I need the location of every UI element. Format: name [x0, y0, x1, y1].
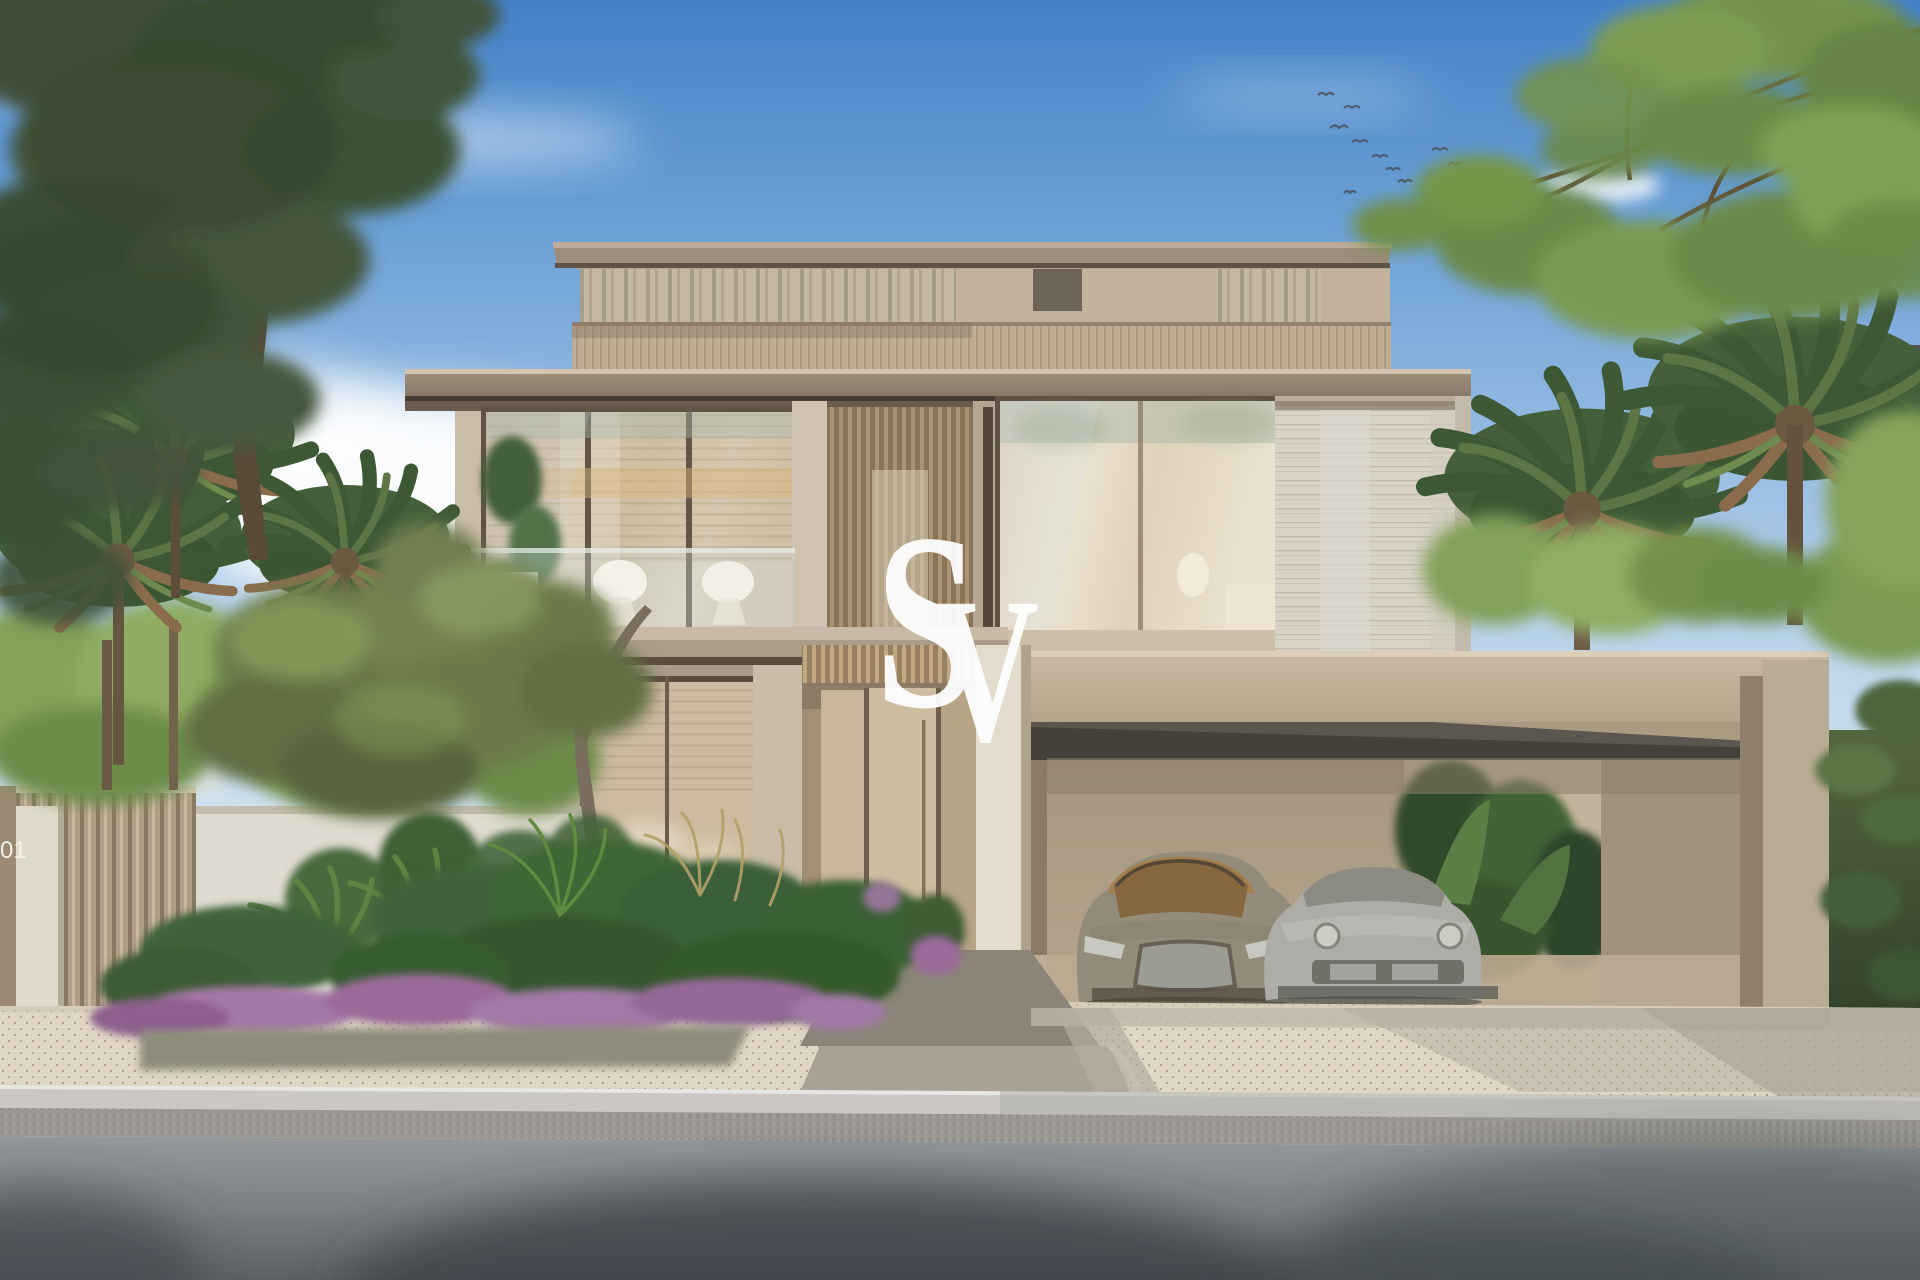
svg-text:S: S	[875, 481, 979, 761]
svg-text:01: 01	[0, 837, 27, 864]
